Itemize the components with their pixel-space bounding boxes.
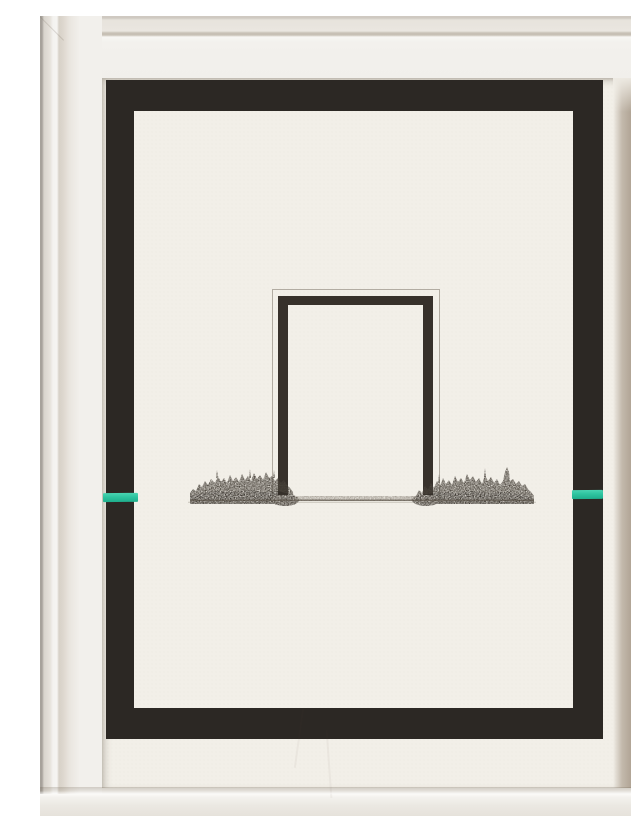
frame-molding-bottom xyxy=(40,794,631,816)
teal-accent-dash-left xyxy=(103,493,138,502)
frame-molding-left xyxy=(40,16,102,816)
framed-artwork-photo: Photograph of a white wooden frame holdi… xyxy=(40,16,631,816)
frame-inner-lip-bottom xyxy=(40,787,631,794)
frame-rabbet-shadow-right xyxy=(613,78,631,788)
teal-accent-dash-right xyxy=(572,490,603,499)
artwork-paper xyxy=(102,78,631,788)
frame-molding-top xyxy=(40,16,631,78)
horizon-vegetation-drawing xyxy=(188,459,536,508)
